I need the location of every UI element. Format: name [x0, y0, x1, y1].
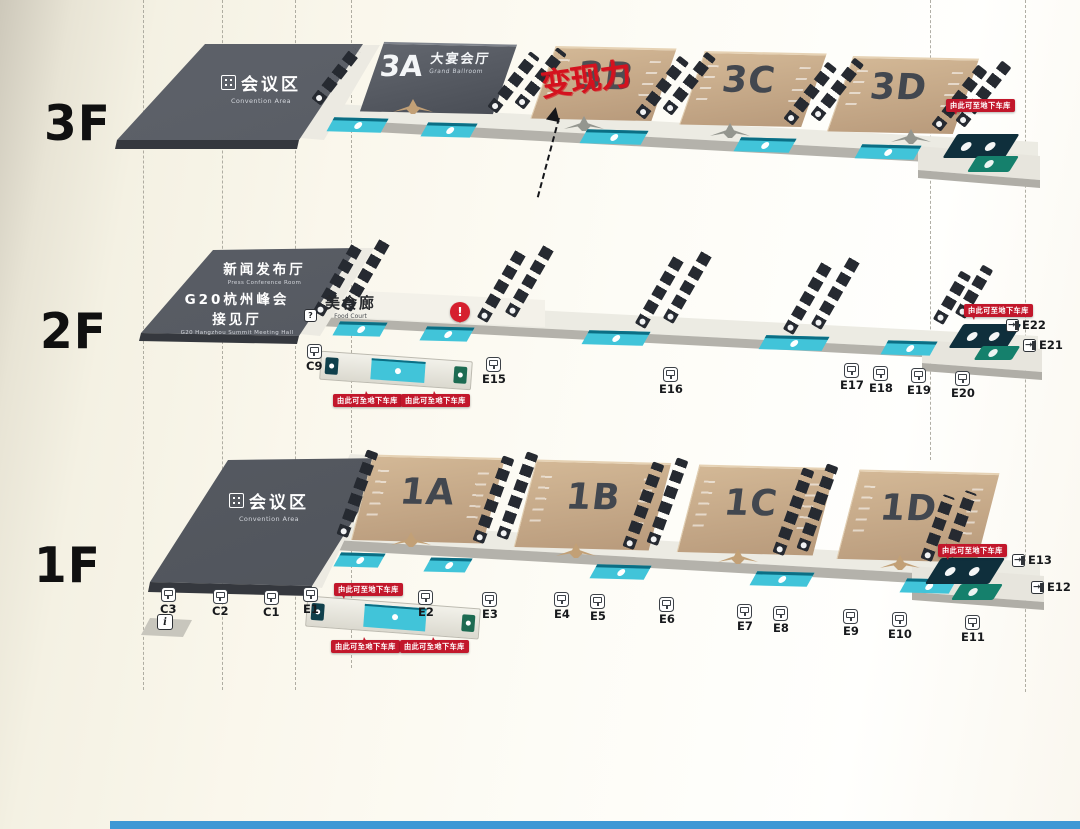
entrance-gate-icon	[482, 592, 497, 607]
marker-E5: E5	[590, 594, 606, 623]
garage-badge: 由此可至地下车库	[401, 394, 470, 407]
convention-area-3f-label: 会议区 Convention Area	[196, 70, 326, 105]
marker-E4: E4	[554, 592, 570, 621]
entrance-gate-icon	[911, 368, 926, 383]
escalator-bar	[326, 117, 388, 132]
hall-1b-number: 1B	[564, 480, 623, 517]
floor-label-2f: 2F	[40, 303, 107, 361]
entrance-gate-icon	[843, 609, 858, 624]
marker-E17: E17	[840, 363, 864, 392]
convention-1f-zh: 会议区	[249, 488, 309, 513]
escalator-bar	[419, 326, 474, 341]
marker-E2: E2	[418, 590, 434, 619]
hall-3a-name-en: Grand Ballroom	[429, 68, 490, 75]
marker-C1: C1	[263, 590, 279, 619]
escalator-bar	[580, 129, 649, 145]
garage-badge: 由此可至地下车库	[946, 99, 1015, 112]
ramp-cap-icon	[453, 366, 467, 383]
floor-label-1f: 1F	[34, 537, 101, 595]
convention-grid-icon	[221, 75, 236, 90]
marker-C9: C9	[306, 344, 322, 373]
press-room-zh: 新闻发布厅	[192, 258, 337, 278]
escalator-bar	[733, 137, 796, 152]
convention-1f-en: Convention Area	[204, 515, 334, 523]
food-court-zh: 美食廊	[303, 292, 398, 313]
entrance-gate-icon	[303, 587, 318, 602]
entrance-gate-icon	[486, 357, 501, 372]
marker-E16: E16	[659, 367, 683, 396]
marker-E8: E8	[773, 606, 789, 635]
hall-1d-number: 1D	[878, 491, 939, 528]
entrance-gate-icon	[737, 604, 752, 619]
ramp-cap-icon	[461, 614, 475, 632]
marker-C3: C3	[160, 587, 176, 616]
food-court-en: Food Court	[303, 313, 398, 320]
escalator-bar	[582, 330, 651, 346]
grid-dashed-line	[143, 0, 144, 690]
garage-badge: 由此可至地下车库	[331, 640, 400, 653]
escalator-bar	[420, 122, 477, 137]
garage-badge: 由此可至地下车库	[400, 640, 469, 653]
entrance-gate-icon	[590, 594, 605, 609]
marker-E12: E12	[1031, 581, 1071, 594]
marker-E3: E3	[482, 592, 498, 621]
marker-E11: E11	[961, 615, 985, 644]
escalator-bar	[750, 571, 815, 587]
entrance-gate-icon	[554, 592, 569, 607]
marker-E15: E15	[482, 357, 506, 386]
entrance-gate-icon	[659, 597, 674, 612]
escalator-bar	[855, 144, 922, 160]
ramp-cap-icon	[325, 357, 339, 374]
entrance-gate-icon	[213, 589, 228, 604]
marker-E22: E22	[1006, 319, 1046, 332]
convention-3f-zh: 会议区	[241, 70, 301, 95]
question-icon: ?	[304, 309, 317, 322]
marker-E13: E13	[1012, 554, 1052, 567]
entrance-gate-icon	[873, 366, 888, 381]
marker-E6: E6	[659, 597, 675, 626]
location-pin-icon: !	[450, 302, 470, 322]
g20-hall-zh1: G20杭州峰会	[162, 288, 312, 308]
garage-ramp-1f	[305, 596, 481, 640]
convention-3f-en: Convention Area	[196, 97, 326, 105]
ramp-escalator-icon	[363, 604, 426, 632]
entrance-gate-icon	[663, 367, 678, 382]
marker-E9: E9	[843, 609, 859, 638]
entrance-gate-icon	[892, 612, 907, 627]
escalator-bar	[880, 340, 937, 355]
entrance-gate-icon	[264, 590, 279, 605]
escalator-bar	[333, 552, 385, 567]
hall-1c-number: 1C	[722, 486, 780, 523]
hall-3a-label: 3A 大宴会厅 Grand Ballroom	[378, 52, 491, 81]
exit-door-icon	[1006, 319, 1019, 332]
bottom-blue-strip	[110, 821, 1080, 829]
garage-badge: 由此可至地下车库	[333, 394, 402, 407]
press-room-label: 新闻发布厅 Press Conference Room	[192, 258, 337, 286]
garage-ramp-2f	[319, 351, 473, 391]
convention-area-1f-label: 会议区 Convention Area	[204, 488, 334, 523]
information-icon: i	[157, 614, 173, 630]
floor-label-3f: 3F	[44, 95, 111, 153]
g20-hall-label: G20杭州峰会 接见厅 G20 Hangzhou Summit Meeting …	[162, 288, 312, 336]
press-room-en: Press Conference Room	[192, 280, 337, 286]
marker-E20: E20	[951, 371, 975, 400]
food-court-label: 美食廊 Food Court	[303, 292, 398, 320]
marker-E7: E7	[737, 604, 753, 633]
marker-E10: E10	[888, 612, 912, 641]
entrance-gate-icon	[844, 363, 859, 378]
g20-hall-zh2: 接见厅	[162, 308, 312, 328]
exit-door-icon	[1031, 581, 1044, 594]
entrance-gate-icon	[418, 590, 433, 605]
entrance-gate-icon	[307, 344, 322, 359]
g20-hall-en: G20 Hangzhou Summit Meeting Hall	[162, 330, 312, 336]
expo-floor-map: 3F 2F 1F 3A 大宴会厅 Grand Ballroom 3B 3C 3D…	[0, 0, 1080, 829]
marker-E21: E21	[1023, 339, 1063, 352]
entrance-gate-icon	[773, 606, 788, 621]
marker-E18: E18	[869, 366, 893, 395]
marker-C2: C2	[212, 589, 228, 618]
exit-door-icon	[1023, 339, 1036, 352]
exit-door-icon	[1012, 554, 1025, 567]
hall-3d-number: 3D	[868, 70, 929, 107]
escalator-bar	[589, 564, 651, 579]
marker-E19: E19	[907, 368, 931, 397]
hall-3a-number: 3A	[378, 52, 424, 81]
marker-E1: E1	[303, 587, 319, 616]
garage-badge: 由此可至地下车库	[938, 544, 1007, 557]
hall-3a-name-zh: 大宴会厅	[430, 52, 492, 68]
hall-1a-number: 1A	[398, 475, 457, 512]
convention-grid-icon	[229, 493, 244, 508]
entrance-gate-icon	[161, 587, 176, 602]
entrance-gate-icon	[955, 371, 970, 386]
escalator-bar	[759, 335, 830, 351]
garage-badge: 由此可至地下车库	[964, 304, 1033, 317]
entrance-gate-icon	[965, 615, 980, 630]
hall-3c-number: 3C	[720, 63, 778, 100]
escalator-bar	[332, 321, 387, 336]
garage-badge: 由此可至地下车库	[334, 583, 403, 596]
ramp-escalator-icon	[370, 358, 425, 383]
escalator-bar	[423, 557, 472, 572]
